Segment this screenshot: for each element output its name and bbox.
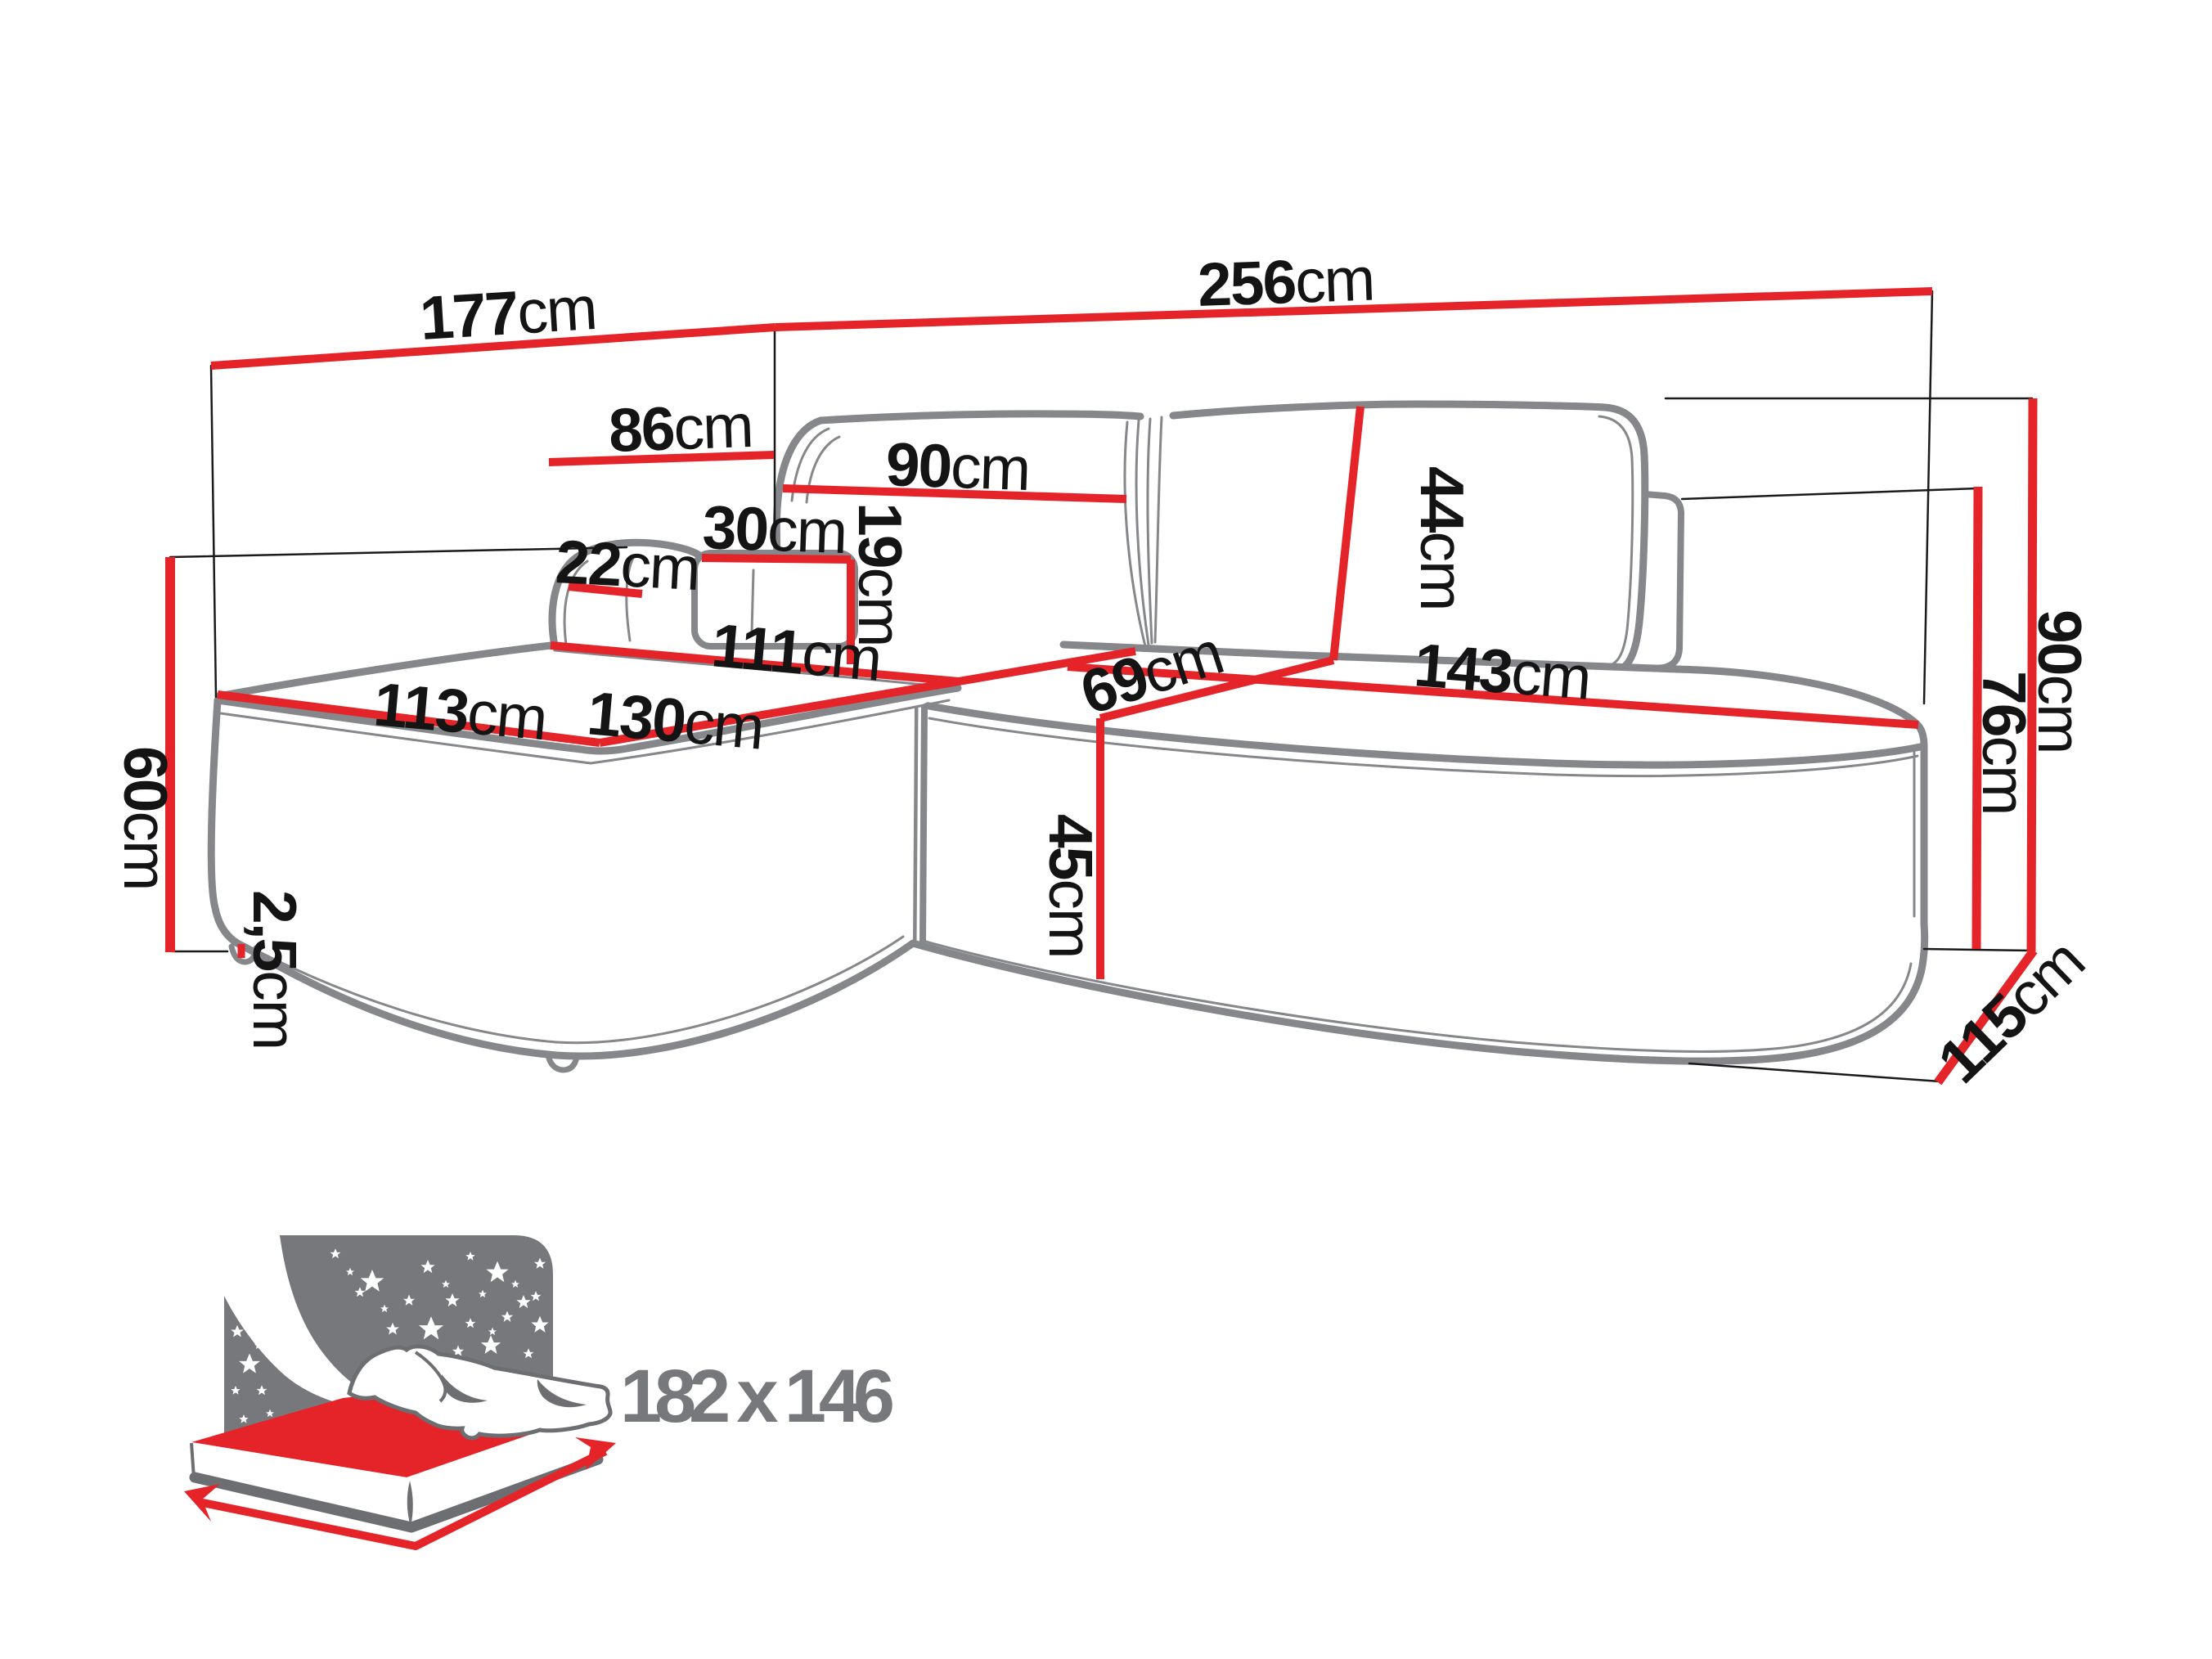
svg-text:177cm: 177cm xyxy=(418,273,598,353)
svg-text:90cm: 90cm xyxy=(884,429,1030,503)
svg-text:22cm: 22cm xyxy=(554,527,701,603)
svg-text:143cm: 143cm xyxy=(1412,630,1593,713)
svg-text:111cm: 111cm xyxy=(709,610,883,694)
svg-text:44cm: 44cm xyxy=(1408,466,1477,609)
svg-text:90cm: 90cm xyxy=(2025,609,2094,753)
svg-text:45cm: 45cm xyxy=(1036,814,1105,957)
svg-text:2,5cm: 2,5cm xyxy=(241,890,309,1049)
svg-text:182 x 146: 182 x 146 xyxy=(620,1355,895,1438)
svg-text:60cm: 60cm xyxy=(111,746,180,889)
svg-text:256cm: 256cm xyxy=(1197,245,1375,319)
svg-text:86cm: 86cm xyxy=(608,391,753,465)
svg-text:30cm: 30cm xyxy=(701,492,847,566)
